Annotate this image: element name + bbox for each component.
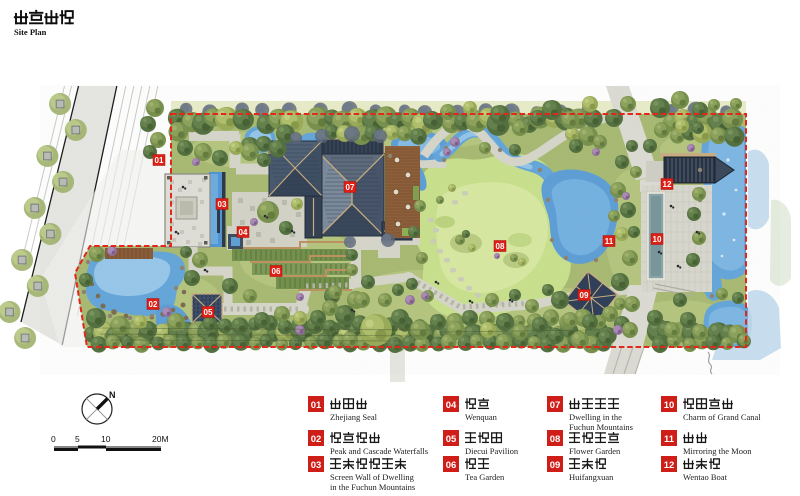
svg-text:Peak and Cascade Waterfalls: Peak and Cascade Waterfalls [330,446,428,456]
svg-text:5: 5 [75,434,80,444]
svg-text:11: 11 [664,434,675,445]
svg-text:Flower Garden: Flower Garden [569,446,621,456]
svg-text:06: 06 [446,460,457,471]
svg-text:06: 06 [272,267,281,276]
svg-text:Charm of Grand Canal: Charm of Grand Canal [683,412,761,422]
svg-text:01: 01 [155,156,164,165]
svg-text:0: 0 [51,434,56,444]
svg-text:03: 03 [311,460,322,471]
svg-text:Mirroring the Moon: Mirroring the Moon [683,446,752,456]
svg-text:09: 09 [580,291,589,300]
svg-text:01: 01 [311,400,322,411]
svg-text:03: 03 [218,200,227,209]
svg-text:Diecui Pavilion: Diecui Pavilion [465,446,519,456]
svg-text:08: 08 [550,434,561,445]
svg-text:12: 12 [663,180,672,189]
svg-text:Dwelling in the: Dwelling in the [569,412,622,422]
svg-text:09: 09 [550,460,561,471]
svg-text:05: 05 [446,434,457,445]
svg-text:07: 07 [550,400,561,411]
svg-text:Site Plan: Site Plan [14,27,47,37]
svg-text:04: 04 [446,400,457,411]
svg-text:Zhejiang Seal: Zhejiang Seal [330,412,378,422]
svg-text:11: 11 [605,237,614,246]
svg-text:N: N [109,390,116,400]
svg-text:in the Fuchun Mountains: in the Fuchun Mountains [330,482,415,492]
svg-text:Tea Garden: Tea Garden [465,472,505,482]
svg-text:12: 12 [664,460,675,471]
svg-text:05: 05 [204,308,213,317]
svg-text:08: 08 [496,242,505,251]
svg-text:10: 10 [101,434,111,444]
svg-text:10: 10 [653,235,662,244]
svg-text:Huifangxuan: Huifangxuan [569,472,614,482]
svg-text:02: 02 [311,434,322,445]
svg-text:Fuchun Mountains: Fuchun Mountains [569,422,633,432]
svg-text:04: 04 [239,228,248,237]
svg-text:Screen Wall of Dwelling: Screen Wall of Dwelling [330,472,415,482]
svg-text:07: 07 [346,183,355,192]
svg-text:10: 10 [664,400,675,411]
svg-text:Wentao Boat: Wentao Boat [683,472,728,482]
svg-text:20M: 20M [152,434,169,444]
svg-text:02: 02 [149,300,158,309]
svg-text:Wenquan: Wenquan [465,412,498,422]
